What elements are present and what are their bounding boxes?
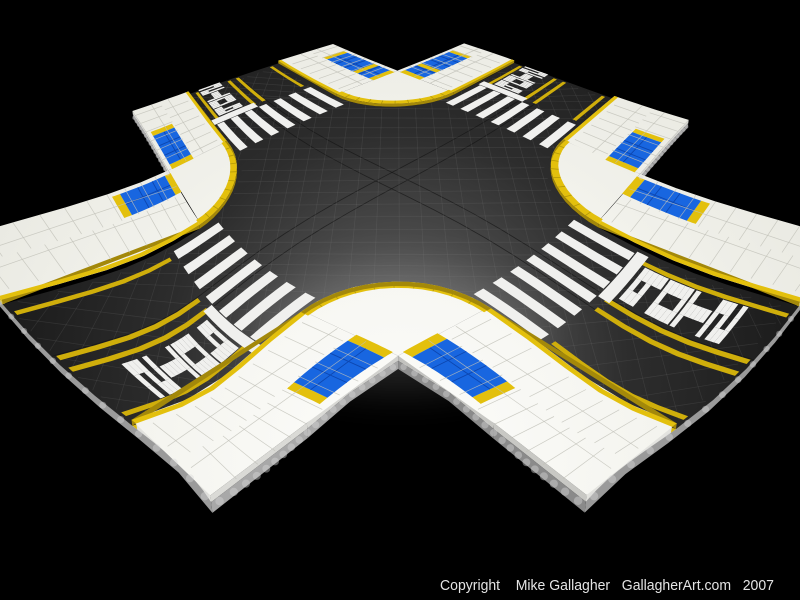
svg-text:Copyright Mike Gallagher: Copyright Mike Gallagher GallagherArt.co…	[440, 577, 774, 594]
